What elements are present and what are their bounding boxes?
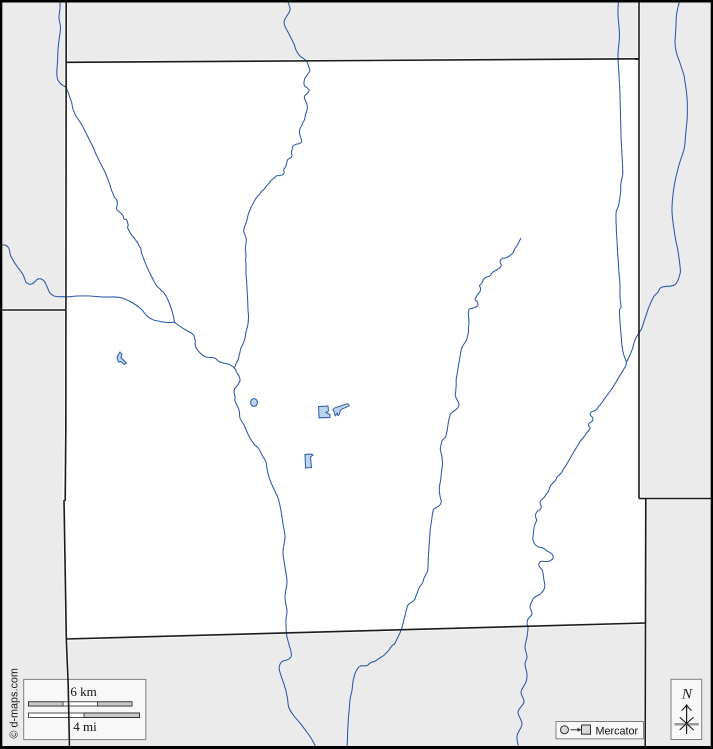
svg-text:© d-maps.com: © d-maps.com	[9, 668, 21, 738]
svg-text:Mercator: Mercator	[596, 726, 639, 738]
svg-text:6 km: 6 km	[70, 684, 96, 699]
svg-text:N: N	[681, 685, 693, 702]
svg-text:4 mi: 4 mi	[73, 719, 97, 734]
